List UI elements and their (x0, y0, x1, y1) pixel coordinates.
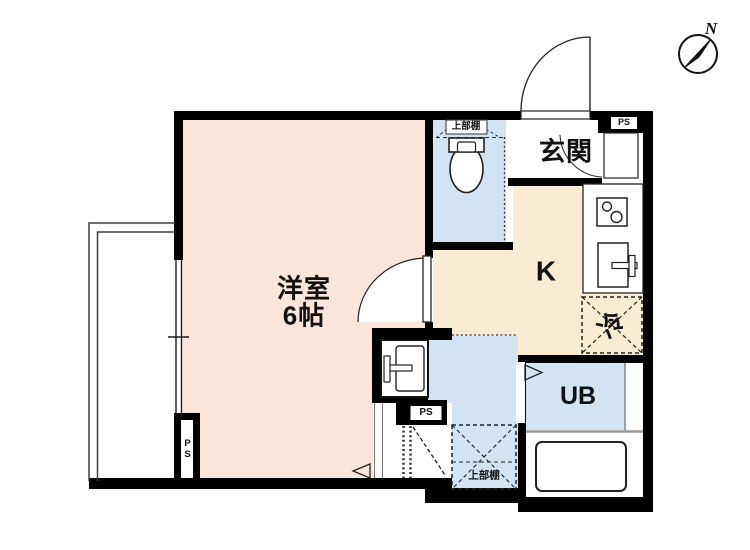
wall-bottom-right (518, 497, 653, 512)
pipe-space-balcony-label: PS (182, 438, 192, 460)
pipe-space-entrance-label: PS (611, 117, 637, 129)
washroom-upper-shelf-label: 上部棚 (468, 470, 500, 481)
kitchen-label: K (536, 256, 556, 285)
toilet-lid-icon (458, 142, 476, 152)
floor-plan-drawing (0, 0, 750, 550)
stove-icon (597, 198, 627, 226)
wall-toilet-left (425, 120, 433, 258)
wall-washroom-left (372, 340, 381, 403)
front-door-sill (521, 111, 590, 119)
floor-plan-canvas: 洋室 6帖 玄関 K UB 冷 上部棚 上部棚 PS PS PS N (0, 0, 750, 550)
wall-washroom-top (372, 328, 452, 340)
western-room-size: 6帖 (277, 303, 331, 330)
washbasin-faucet-base (384, 356, 390, 382)
front-door (521, 37, 590, 119)
wall-bottom-washroom (425, 488, 522, 503)
inner-door-leaf (604, 133, 638, 178)
kitchen-counter (583, 184, 643, 293)
wall-top-left (174, 111, 521, 120)
wall-unit-bath-top (518, 355, 653, 363)
compass (679, 35, 717, 73)
kitchen-faucet-base (629, 256, 635, 277)
door-leaf (423, 256, 431, 322)
bathtub-icon (536, 442, 626, 491)
front-door-arc (521, 37, 590, 111)
toilet-upper-shelf-label: 上部棚 (452, 122, 481, 132)
wall-left-upper (174, 111, 183, 260)
compass-north-label: N (705, 20, 717, 38)
balcony-inner-line (98, 232, 176, 481)
unit-bath-door (516, 362, 525, 423)
pipe-space-washroom-label: PS (411, 406, 442, 420)
balcony-outer-line (89, 223, 175, 481)
wall-bottom-left (89, 478, 452, 489)
wall-toilet-bottom (425, 242, 513, 250)
wall-right (643, 111, 653, 512)
unit-bath-label: UB (560, 383, 596, 409)
entrance-label: 玄関 (539, 138, 593, 165)
western-room-label: 洋室 6帖 (277, 276, 331, 331)
western-room-name: 洋室 (277, 276, 331, 303)
balcony (89, 223, 175, 481)
